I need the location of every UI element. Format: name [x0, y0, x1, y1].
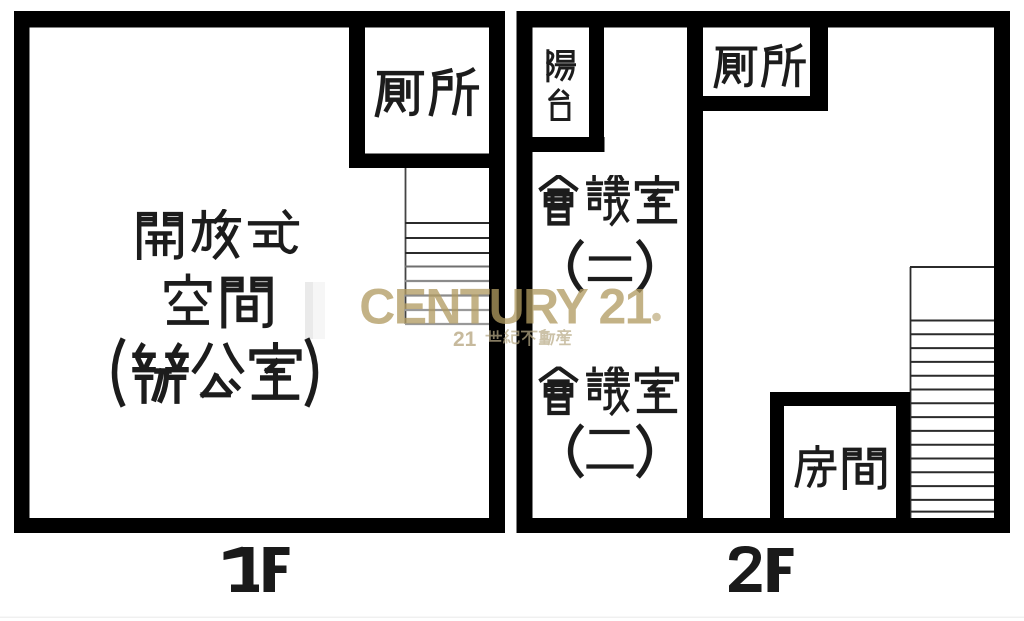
svg-text:21: 21 — [453, 328, 477, 351]
svg-text:CENTURY 21: CENTURY 21 — [359, 279, 651, 335]
